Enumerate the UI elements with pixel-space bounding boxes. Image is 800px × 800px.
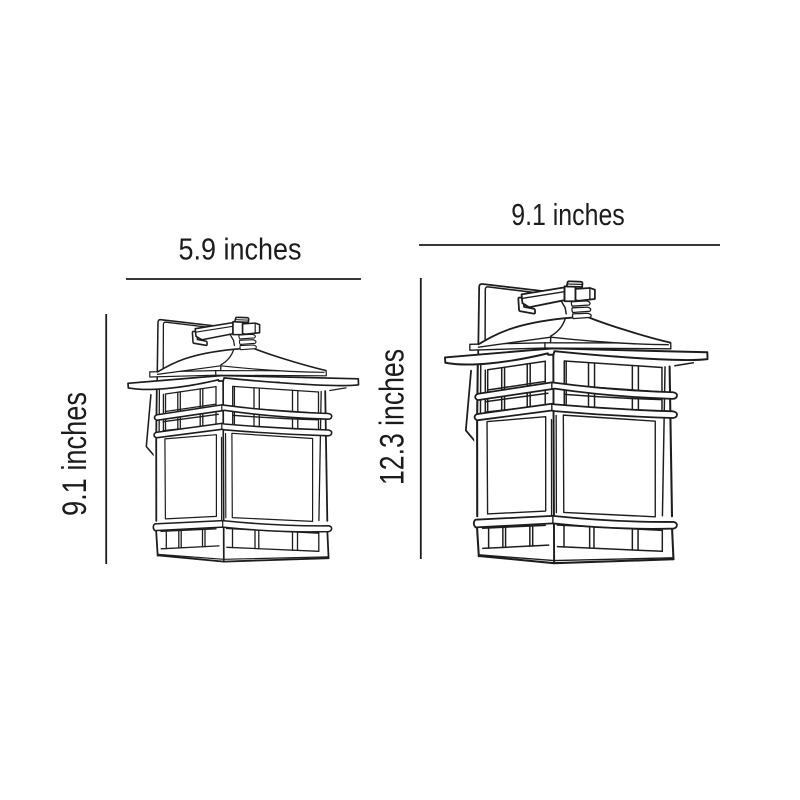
svg-text:9.1 inches: 9.1 inches xyxy=(511,197,625,232)
svg-text:9.1 inches: 9.1 inches xyxy=(56,392,94,516)
svg-text:12.3 inches: 12.3 inches xyxy=(373,349,411,485)
svg-text:5.9 inches: 5.9 inches xyxy=(179,232,302,267)
